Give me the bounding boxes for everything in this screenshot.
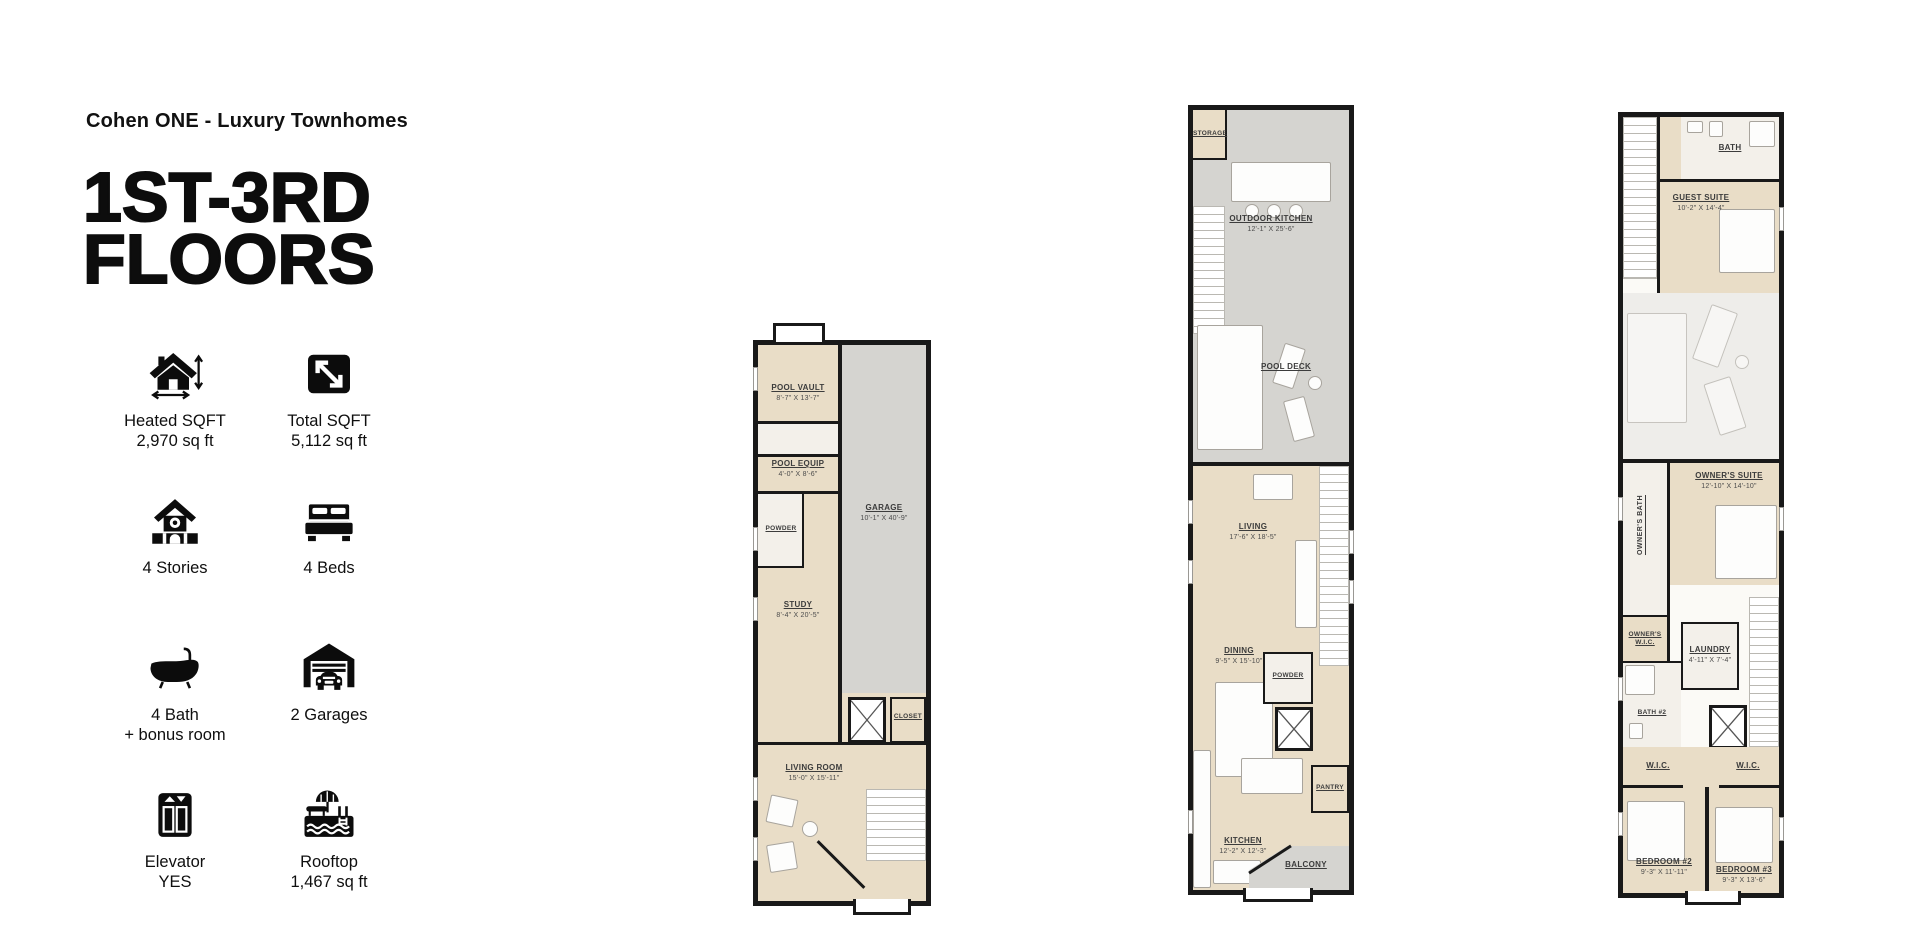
window-marker (1349, 530, 1354, 554)
furniture (1253, 474, 1293, 500)
stat-value: YES (158, 872, 191, 892)
stairs (1623, 117, 1657, 279)
floorplan-third-floor: BATH GUEST SUITE 10'-2" X 14'-4" OWNER'S… (1618, 112, 1784, 898)
window-marker (1779, 207, 1784, 231)
stat-rooftop: Rooftop 1,467 sq ft (254, 779, 404, 926)
stat-value: + bonus room (124, 725, 225, 745)
stat-elevator: Elevator YES (96, 779, 254, 926)
room-owners-bath (1623, 463, 1667, 615)
pool-outline (1197, 325, 1263, 450)
rear-steps (1685, 891, 1741, 905)
window-marker (1779, 817, 1784, 841)
window-marker (1349, 580, 1354, 604)
window-marker (753, 527, 758, 551)
room-powder2 (1263, 652, 1313, 704)
hall-zone (1657, 117, 1681, 181)
stat-value: 5,112 sq ft (291, 431, 367, 451)
stairs (866, 789, 926, 861)
page-title: 1ST-3RD FLOORS (83, 166, 375, 290)
hall-zone (1623, 747, 1779, 787)
wall (1705, 787, 1709, 893)
furniture (1308, 376, 1322, 390)
entry-porch (773, 323, 825, 342)
stat-label: Heated SQFT (124, 411, 226, 431)
elevator-shaft (1275, 707, 1313, 751)
elevator-shaft (848, 697, 886, 743)
room-garage (842, 345, 926, 693)
window-marker (753, 367, 758, 391)
furniture (1267, 204, 1281, 218)
floorplan-second-floor: STORAGE OUTDOOR KITCHEN 12'-1" X 25'-6" … (1188, 105, 1354, 895)
fixture-shower (1749, 121, 1775, 147)
stat-label: 4 Bath (151, 705, 199, 725)
window-marker (1188, 500, 1193, 524)
room-closet (890, 697, 926, 743)
wall (1657, 179, 1779, 182)
stat-garages: 2 Garages (254, 632, 404, 779)
elevator-shaft (1709, 705, 1747, 749)
stat-label: Rooftop (300, 852, 358, 872)
page-title-line2: FLOORS (83, 228, 375, 290)
stat-label: Total SQFT (287, 411, 370, 431)
page-title-line1: 1ST-3RD (83, 166, 375, 228)
window-marker (753, 777, 758, 801)
elevator-icon (147, 779, 203, 843)
room-powder (758, 494, 804, 568)
wall (758, 421, 838, 424)
window-marker (1618, 812, 1623, 836)
fixture-sink (1687, 121, 1703, 133)
rear-steps (1243, 888, 1313, 902)
window-marker (753, 597, 758, 621)
garage-icon (301, 632, 357, 696)
bathtub-icon (147, 632, 203, 696)
furniture-bed (1715, 505, 1777, 579)
rear-porch (853, 899, 911, 915)
floorplan-first-floor: POOL VAULT 8'-7" X 13'-7" POOL EQUIP 4'-… (753, 340, 931, 906)
window-marker (1618, 677, 1623, 701)
room-owners-wic (1623, 615, 1667, 661)
furniture (802, 821, 818, 837)
heated-sqft-icon (147, 338, 203, 402)
window-marker (1188, 810, 1193, 834)
stat-value: 2,970 sq ft (136, 431, 213, 451)
furniture-island (1231, 162, 1331, 202)
furniture-bed (1627, 801, 1685, 861)
window-marker (753, 837, 758, 861)
room-laundry (1681, 622, 1739, 690)
stat-label: 4 Beds (303, 558, 354, 578)
furniture (765, 794, 798, 827)
stat-label: 4 Stories (142, 558, 207, 578)
furniture (1289, 204, 1303, 218)
window-marker (1779, 507, 1784, 531)
furniture (1627, 313, 1687, 423)
room-label-owners-bath: OWNER'S BATH (1637, 495, 1644, 555)
stat-label: 2 Garages (290, 705, 367, 725)
stat-label: Elevator (145, 852, 206, 872)
stats-grid: Heated SQFT 2,970 sq ft Total SQFT 5,112… (96, 338, 408, 926)
wall (758, 454, 838, 457)
room-pantry (1311, 765, 1349, 813)
wall (1657, 117, 1660, 293)
stairs (1193, 206, 1225, 334)
brand-title: Cohen ONE - Luxury Townhomes (86, 110, 408, 133)
stat-value: 1,467 sq ft (290, 872, 367, 892)
stat-heated-sqft: Heated SQFT 2,970 sq ft (96, 338, 254, 485)
rooftop-pool-icon (301, 779, 357, 843)
furniture (766, 841, 798, 873)
wall (1719, 785, 1779, 788)
wall (758, 491, 838, 494)
furniture-bed (1719, 209, 1775, 273)
kitchen-counter (1193, 750, 1211, 888)
stories-icon (147, 485, 203, 549)
stair-landing (758, 424, 838, 454)
stat-beds: 4 Beds (254, 485, 404, 632)
stat-stories: 4 Stories (96, 485, 254, 632)
room-storage (1193, 110, 1227, 160)
window-marker (1618, 497, 1623, 521)
fixture-shower (1625, 665, 1655, 695)
window-marker (1188, 560, 1193, 584)
total-sqft-icon (301, 338, 357, 402)
stairs (1749, 597, 1779, 747)
furniture (1735, 355, 1749, 369)
fixture-toilet (1629, 723, 1643, 739)
stat-total-sqft: Total SQFT 5,112 sq ft (254, 338, 404, 485)
wall (838, 345, 842, 745)
stairs (1319, 466, 1349, 666)
stat-bath: 4 Bath + bonus room (96, 632, 254, 779)
furniture-bed (1715, 807, 1773, 863)
wall (1623, 785, 1683, 788)
kitchen-island (1241, 758, 1303, 794)
furniture (1245, 204, 1259, 218)
fixture-toilet (1709, 121, 1723, 137)
furniture-sofa (1295, 540, 1317, 628)
beds-icon (301, 485, 357, 549)
